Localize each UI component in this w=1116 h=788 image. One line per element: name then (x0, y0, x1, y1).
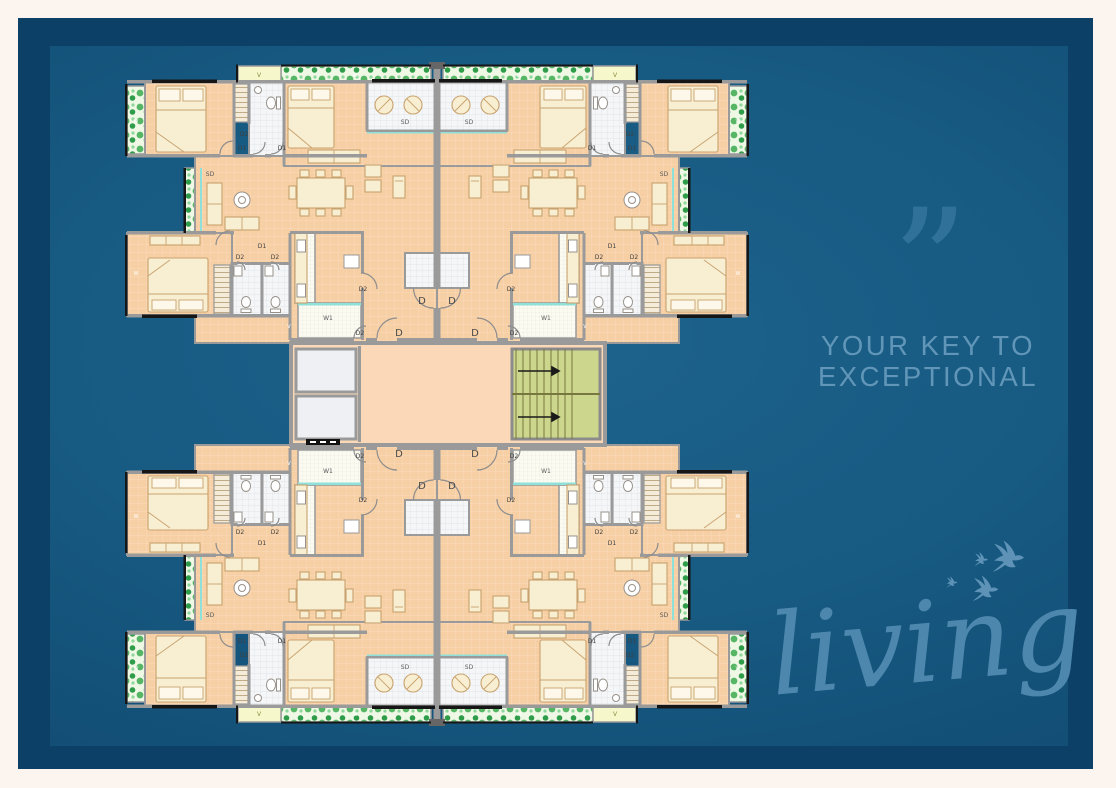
plan-label-W: W (517, 712, 522, 718)
entrance-mat (306, 439, 340, 445)
tagline-line-2: EXCEPTIONAL (756, 361, 1100, 392)
plan-label-D2: D2 (359, 286, 368, 293)
plan-label-D1: D1 (628, 638, 637, 645)
plan-label-D2: D2 (626, 131, 635, 138)
plan-label-D1: D1 (588, 638, 597, 645)
tagline: YOUR KEY TO EXCEPTIONAL (756, 330, 1100, 392)
plan-label-D2: D2 (240, 131, 249, 138)
plan-label-W1: W1 (541, 468, 551, 475)
plan-label-D: D (448, 481, 456, 492)
staircase (512, 349, 600, 439)
plan-label-SD: SD (401, 119, 410, 126)
plan-label-D2: D2 (510, 453, 519, 460)
plan-label-D1: D1 (258, 540, 267, 547)
plan-label-SD: SD (401, 664, 410, 671)
plan-label-W: W (736, 119, 741, 125)
tagline-line-1: YOUR KEY TO (756, 330, 1100, 361)
plan-label-D2: D2 (271, 254, 280, 261)
plan-label-D2: D2 (510, 330, 519, 337)
floor-plan: VVVVWWWWWWWWWWWWD2D2D2D2D1D1D1D1D1D1D1D1… (122, 60, 752, 728)
plan-label-D1: D1 (278, 638, 287, 645)
living-script-text: living (764, 565, 1089, 722)
plan-label-W: W (134, 666, 139, 672)
plan-label-SD: SD (206, 171, 215, 178)
plan-label-D: D (395, 328, 403, 339)
plan-label-D1: D1 (258, 243, 267, 250)
plan-label-D2: D2 (507, 286, 516, 293)
plan-label-V: V (287, 461, 291, 467)
plan-label-V: V (287, 324, 291, 330)
plan-label-D: D (418, 481, 426, 492)
quote-icon: ” (830, 210, 1030, 320)
plan-label-D2: D2 (236, 254, 245, 261)
plan-label-D: D (448, 296, 456, 307)
plan-label-SD: SD (660, 612, 669, 619)
plan-label-D1: D1 (238, 638, 247, 645)
plan-label-W: W (736, 271, 741, 277)
plan-label-D1: D1 (608, 540, 617, 547)
plan-label-D2: D2 (236, 529, 245, 536)
plan-label-D2: D2 (356, 330, 365, 337)
plan-label-W1: W1 (541, 315, 551, 322)
plan-label-W: W (134, 514, 139, 520)
plan-label-D: D (395, 449, 403, 460)
plan-label-W1: W1 (323, 315, 333, 322)
plan-label-D1: D1 (628, 145, 637, 152)
plan-label-D1: D1 (278, 145, 287, 152)
plan-label-SD: SD (206, 612, 215, 619)
plan-label-W1: W1 (323, 468, 333, 475)
plan-label-SD: SD (465, 119, 474, 126)
plan-label-D1: D1 (608, 243, 617, 250)
living-script: living (763, 553, 1097, 753)
elevator-shaft-2 (296, 396, 356, 439)
plan-label-D2: D2 (240, 652, 249, 659)
plan-label-D2: D2 (507, 497, 516, 504)
plan-label-V: V (583, 461, 587, 467)
plan-label-D1: D1 (588, 145, 597, 152)
elevator-shaft-1 (296, 349, 356, 392)
plan-label-W: W (517, 73, 522, 79)
plan-label-D2: D2 (630, 254, 639, 261)
plan-label-D2: D2 (359, 497, 368, 504)
plan-label-W: W (134, 271, 139, 277)
plan-label-W: W (736, 514, 741, 520)
plan-label-W: W (134, 119, 139, 125)
plan-label-W: W (736, 666, 741, 672)
apartment-quadrant-top-left (125, 62, 437, 343)
plan-label-D: D (418, 296, 426, 307)
plan-label-V: V (583, 324, 587, 330)
plan-label-SD: SD (660, 171, 669, 178)
plan-label-D2: D2 (630, 529, 639, 536)
apartment-quadrant-bottom-left (125, 445, 437, 726)
plan-label-D2: D2 (626, 652, 635, 659)
plan-label-D2: D2 (595, 254, 604, 261)
plan-label-D2: D2 (595, 529, 604, 536)
plan-label-W: W (353, 73, 358, 79)
brochure-page: VVVVWWWWWWWWWWWWD2D2D2D2D1D1D1D1D1D1D1D1… (0, 0, 1116, 788)
apartment-quadrant-bottom-right (437, 445, 749, 726)
plan-label-D2: D2 (356, 453, 365, 460)
plan-label-D: D (471, 328, 479, 339)
plan-label-SD: SD (465, 664, 474, 671)
plan-label-W: W (353, 712, 358, 718)
plan-label-D1: D1 (238, 145, 247, 152)
floor-plan-svg: VVVVWWWWWWWWWWWWD2D2D2D2D1D1D1D1D1D1D1D1… (122, 60, 752, 728)
central-core (291, 343, 605, 445)
apartment-quadrant-top-right (437, 62, 749, 343)
plan-label-D2: D2 (271, 529, 280, 536)
plan-label-D: D (471, 449, 479, 460)
